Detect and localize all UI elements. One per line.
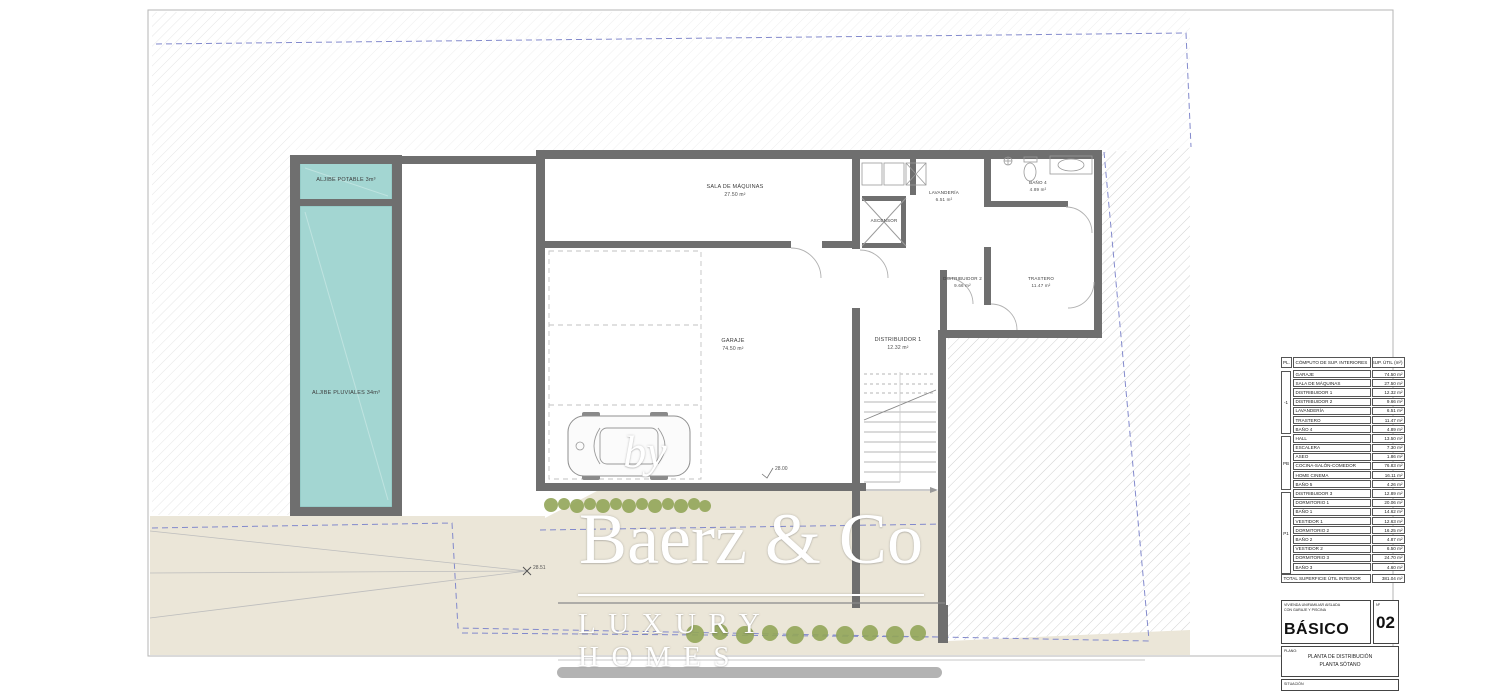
room-area-cell: 4.26 m² xyxy=(1372,480,1405,488)
sheet-number: 02 xyxy=(1376,613,1396,633)
table-row: BAÑO 4 4.89 m² xyxy=(1293,425,1405,433)
table-row: BAÑO 2 4.87 m² xyxy=(1293,535,1405,543)
room-name-cell: DISTRIBUIDOR 3 xyxy=(1293,489,1371,497)
room-area-cell: 13.50 m² xyxy=(1372,434,1405,442)
table-row: HOME CINEMA 16.11 m² xyxy=(1293,471,1405,479)
col-header-value: SUP. ÚTIL (m²) xyxy=(1372,357,1405,368)
sheet-number-box: Nº 02 xyxy=(1373,600,1399,644)
room-area-cell: 24.70 m² xyxy=(1372,554,1405,562)
room-name-cell: COCINA-SALÓN-COMEDOR xyxy=(1293,462,1371,470)
table-row: DORMITORIO 2 16.25 m² xyxy=(1293,526,1405,534)
watermark-rule xyxy=(578,594,924,596)
room-label-aljibe-potable: ALJIBE POTABLE 3m³ xyxy=(301,177,391,185)
aljibe-tanks xyxy=(300,163,392,507)
room-name-cell: BAÑO 5 xyxy=(1293,480,1371,488)
room-area-cell: 1.86 m² xyxy=(1372,453,1405,461)
areas-table-body: GARAJE 74.50 m² SALA DE MÁQUINAS 27.50 m… xyxy=(1293,370,1405,571)
watermark-tagline: LUXURY HOMES xyxy=(578,608,938,674)
table-row: DISTRIBUIDOR 2 9.66 m² xyxy=(1293,398,1405,406)
room-label-sala-maquinas: SALA DE MÁQUINAS 27.50 m² xyxy=(690,184,780,199)
table-row: ASEO 1.86 m² xyxy=(1293,453,1405,461)
floorplan-sheet: ALJIBE POTABLE 3m³ ALJIBE PLUVIALES 34m³… xyxy=(0,0,1500,692)
room-area-cell: 6.51 m² xyxy=(1372,407,1405,415)
room-label-aljibe-pluviales: ALJIBE PLUVIALES 34m³ xyxy=(301,390,391,398)
project-info-box: VIVIENDA UNIFAMILIAR AISLADA CON GARAJE … xyxy=(1281,600,1371,644)
room-name-cell: DORMITORIO 2 xyxy=(1293,526,1371,534)
room-name-cell: ESCALERA xyxy=(1293,444,1371,452)
room-area-cell: 4.60 m² xyxy=(1372,563,1405,571)
floor-group-label-first: P1 xyxy=(1281,492,1291,574)
room-name-cell: DORMITORIO 1 xyxy=(1293,499,1371,507)
floor-group-label-basement: -1 xyxy=(1281,371,1291,434)
table-row: DISTRIBUIDOR 3 12.89 m² xyxy=(1293,489,1405,497)
table-row: HALL 13.50 m² xyxy=(1293,434,1405,442)
room-name-cell: DISTRIBUIDOR 2 xyxy=(1293,398,1371,406)
watermark-by: by xyxy=(600,425,690,478)
situation-box: SITUACIÓN xyxy=(1281,679,1399,691)
room-area-cell: 20.06 m² xyxy=(1372,499,1405,507)
room-area-cell: 11.47 m² xyxy=(1372,416,1405,424)
room-name-cell: VESTIDOR 1 xyxy=(1293,517,1371,525)
room-area-cell: 74.50 m² xyxy=(1372,370,1405,378)
table-row: LAVANDERÍA 6.51 m² xyxy=(1293,407,1405,415)
room-label-bano-4: BAÑO 4 4.89 m² xyxy=(1018,180,1058,193)
room-label-distribuidor-1: DISTRIBUIDOR 1 12.32 m² xyxy=(868,337,928,352)
table-row: GARAJE 74.50 m² xyxy=(1293,370,1405,378)
room-label-garaje: GARAJE 74.50 m² xyxy=(703,338,763,353)
room-name-cell: BAÑO 2 xyxy=(1293,535,1371,543)
room-name-cell: TRASTERO xyxy=(1293,416,1371,424)
room-name-cell: SALA DE MÁQUINAS xyxy=(1293,379,1371,387)
table-row: DISTRIBUIDOR 1 12.32 m² xyxy=(1293,388,1405,396)
table-row: BAÑO 1 14.62 m² xyxy=(1293,508,1405,516)
table-row: BAÑO 5 4.26 m² xyxy=(1293,480,1405,488)
plan-name-box: PLANO: PLANTA DE DISTRIBUCIÓN PLANTA SÓT… xyxy=(1281,646,1399,677)
areas-table-header: PL. CÓMPUTO DE SUP. INTERIORES SUP. ÚTIL… xyxy=(1281,357,1405,368)
level-annotation-2: 28.00 xyxy=(775,466,788,472)
title-block: VIVIENDA UNIFAMILIAR AISLADA CON GARAJE … xyxy=(1281,600,1399,692)
room-area-cell: 4.87 m² xyxy=(1372,535,1405,543)
room-name-cell: LAVANDERÍA xyxy=(1293,407,1371,415)
room-area-cell: 4.89 m² xyxy=(1372,425,1405,433)
room-name-cell: ASEO xyxy=(1293,453,1371,461)
areas-table-total-row: TOTAL SUPERFICIE ÚTIL INTERIOR 381.04 m² xyxy=(1281,574,1405,583)
room-area-cell: 7.30 m² xyxy=(1372,444,1405,452)
room-area-cell: 16.11 m² xyxy=(1372,471,1405,479)
total-value: 381.04 m² xyxy=(1372,574,1405,583)
room-area-cell: 6.50 m² xyxy=(1372,545,1405,553)
phase-title: BÁSICO xyxy=(1284,621,1368,639)
col-header-name: CÓMPUTO DE SUP. INTERIORES xyxy=(1293,357,1371,368)
room-name-cell: HALL xyxy=(1293,434,1371,442)
total-label: TOTAL SUPERFICIE ÚTIL INTERIOR xyxy=(1281,574,1371,583)
project-line-2: CON GARAJE Y PISCINA xyxy=(1284,608,1368,613)
room-name-cell: DORMITORIO 3 xyxy=(1293,554,1371,562)
level-annotation-1: 28.51 xyxy=(533,565,546,571)
table-row: SALA DE MÁQUINAS 27.50 m² xyxy=(1293,379,1405,387)
room-name-cell: VESTIDOR 2 xyxy=(1293,545,1371,553)
number-label: Nº xyxy=(1376,603,1396,607)
areas-summary-table: PL. CÓMPUTO DE SUP. INTERIORES SUP. ÚTIL… xyxy=(1281,357,1405,583)
table-row: ESCALERA 7.30 m² xyxy=(1293,444,1405,452)
room-name-cell: HOME CINEMA xyxy=(1293,471,1371,479)
watermark-brand: Baerz & Co xyxy=(566,498,936,581)
table-row: DORMITORIO 3 24.70 m² xyxy=(1293,554,1405,562)
room-name-cell: DISTRIBUIDOR 1 xyxy=(1293,388,1371,396)
table-row: VESTIDOR 2 6.50 m² xyxy=(1293,545,1405,553)
room-area-cell: 27.50 m² xyxy=(1372,379,1405,387)
room-name-cell: BAÑO 4 xyxy=(1293,425,1371,433)
table-row: TRASTERO 11.47 m² xyxy=(1293,416,1405,424)
floor-group-label-ground: PB xyxy=(1281,436,1291,490)
room-area-cell: 16.25 m² xyxy=(1372,526,1405,534)
col-header-pl: PL. xyxy=(1281,357,1292,368)
room-name-cell: BAÑO 1 xyxy=(1293,508,1371,516)
room-name-cell: BAÑO 3 xyxy=(1293,563,1371,571)
room-label-lavanderia: LAVANDERÍA 6.51 m² xyxy=(922,190,966,203)
room-area-cell: 9.66 m² xyxy=(1372,398,1405,406)
table-row: DORMITORIO 1 20.06 m² xyxy=(1293,499,1405,507)
situation-label: SITUACIÓN xyxy=(1284,682,1396,686)
room-area-cell: 12.89 m² xyxy=(1372,489,1405,497)
room-area-cell: 12.32 m² xyxy=(1372,388,1405,396)
table-row: VESTIDOR 1 12.63 m² xyxy=(1293,517,1405,525)
room-area-cell: 14.62 m² xyxy=(1372,508,1405,516)
room-label-distribuidor-2: DISTRIBUIDOR 2 9.66 m² xyxy=(935,276,990,289)
room-name-cell: GARAJE xyxy=(1293,370,1371,378)
plan-name-line-1: PLANTA DE DISTRIBUCIÓN xyxy=(1284,653,1396,661)
table-row: BAÑO 3 4.60 m² xyxy=(1293,563,1405,571)
room-label-ascensor: ASCENSOR xyxy=(863,218,905,225)
room-area-cell: 76.83 m² xyxy=(1372,462,1405,470)
table-row: COCINA-SALÓN-COMEDOR 76.83 m² xyxy=(1293,462,1405,470)
room-label-trastero: TRASTERO 11.47 m² xyxy=(1018,276,1064,289)
room-area-cell: 12.63 m² xyxy=(1372,517,1405,525)
plan-name-line-2: PLANTA SÓTANO xyxy=(1284,661,1396,669)
